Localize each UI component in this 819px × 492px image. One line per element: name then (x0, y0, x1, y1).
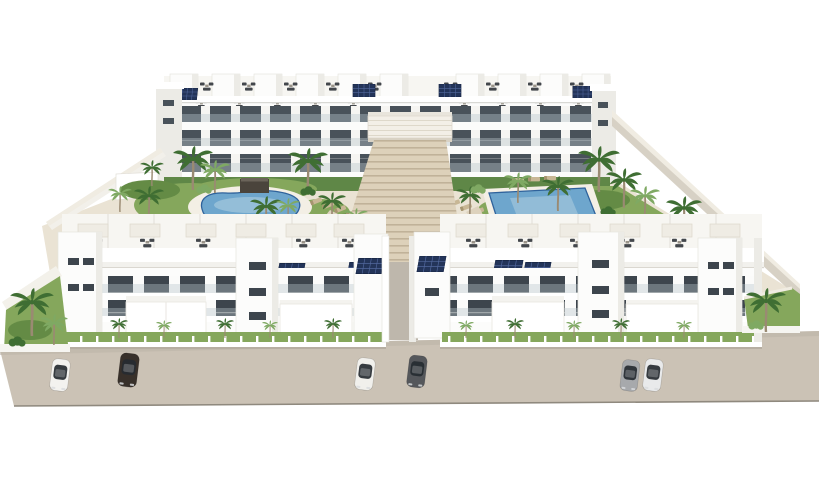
car (619, 359, 640, 392)
car (406, 355, 428, 389)
front-left-block (58, 214, 388, 349)
render-canvas (0, 0, 819, 492)
back-roof-slab (158, 96, 614, 103)
tower-solar (356, 258, 385, 273)
bridge-walkway (368, 116, 452, 138)
front-fence (440, 342, 762, 347)
front-fence (62, 342, 386, 347)
pool-gazebo (240, 178, 269, 193)
rooftop-penthouses (170, 74, 610, 97)
car (49, 358, 71, 392)
front-building-row (58, 214, 764, 349)
car (117, 352, 140, 388)
front-right-block (414, 214, 764, 349)
roof-slab (60, 248, 388, 264)
tower-solar (417, 256, 447, 272)
apartment-complex-render (0, 0, 819, 492)
car (642, 358, 664, 392)
right-corner-garden (742, 288, 800, 333)
car (354, 357, 376, 391)
entrance-alley (382, 226, 418, 342)
